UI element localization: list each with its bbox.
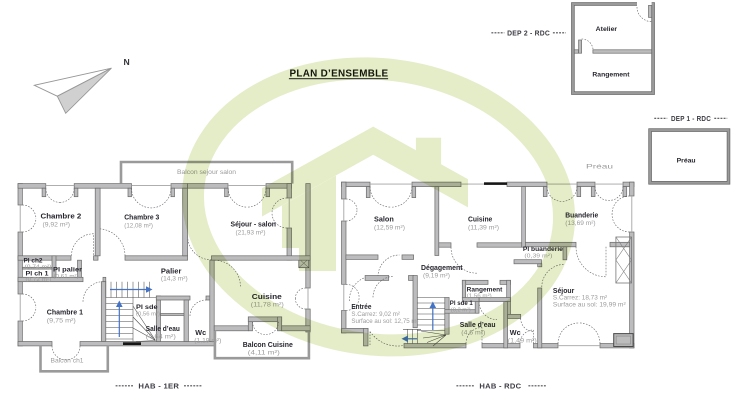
svg-text:(0,61 m²): (0,61 m²) bbox=[54, 274, 79, 280]
svg-text:N: N bbox=[124, 57, 130, 67]
svg-text:(0,72 m²): (0,72 m²) bbox=[26, 277, 52, 283]
svg-text:(1,56 m²): (1,56 m²) bbox=[467, 294, 492, 300]
svg-text:Rangement: Rangement bbox=[467, 286, 503, 293]
svg-text:(4,64 m²): (4,64 m²) bbox=[146, 334, 176, 341]
svg-text:Cuisine: Cuisine bbox=[468, 216, 492, 224]
svg-text:Séjour - salon: Séjour - salon bbox=[231, 221, 277, 229]
svg-text:Pl palier: Pl palier bbox=[53, 266, 83, 273]
svg-text:Chambre 3: Chambre 3 bbox=[124, 213, 159, 221]
svg-text:(9,19 m²): (9,19 m²) bbox=[423, 273, 450, 280]
svg-text:Salle d’eau: Salle d’eau bbox=[146, 325, 180, 333]
svg-text:HAB - 1ER: HAB - 1ER bbox=[138, 384, 179, 391]
svg-text:Pl sde 1: Pl sde 1 bbox=[450, 300, 474, 307]
svg-text:Chambre 2: Chambre 2 bbox=[41, 212, 82, 220]
svg-text:Wc: Wc bbox=[195, 329, 206, 337]
svg-text:Dégagement: Dégagement bbox=[421, 264, 463, 272]
svg-text:Salon: Salon bbox=[374, 216, 394, 224]
svg-text:(0,56 m²): (0,56 m²) bbox=[136, 312, 160, 318]
svg-text:Wc: Wc bbox=[510, 329, 521, 337]
svg-text:(1,19 m²): (1,19 m²) bbox=[194, 337, 221, 344]
svg-text:Rangement: Rangement bbox=[592, 72, 629, 79]
svg-text:(14,3 m²): (14,3 m²) bbox=[161, 275, 188, 282]
svg-text:Balcon ch1: Balcon ch1 bbox=[51, 357, 85, 364]
svg-text:Surface au sol: 19,99 m²: Surface au sol: 19,99 m² bbox=[553, 301, 626, 308]
svg-text:(0,2 m²): (0,2 m²) bbox=[451, 308, 471, 314]
svg-text:HAB - RDC: HAB - RDC bbox=[479, 384, 521, 391]
svg-text:S.Carrez: 9,02 m²: S.Carrez: 9,02 m² bbox=[351, 311, 400, 318]
svg-text:Entrée: Entrée bbox=[351, 303, 371, 311]
svg-text:(12,59 m²): (12,59 m²) bbox=[374, 225, 405, 232]
svg-text:DEP 1 - RDC: DEP 1 - RDC bbox=[671, 116, 711, 123]
svg-text:Pl sde: Pl sde bbox=[136, 304, 158, 311]
svg-text:Préau: Préau bbox=[586, 164, 614, 171]
svg-text:(21,93 m²): (21,93 m²) bbox=[236, 230, 266, 237]
svg-text:(1,49 m²): (1,49 m²) bbox=[508, 337, 537, 344]
svg-text:(9,75 m²): (9,75 m²) bbox=[47, 317, 76, 324]
svg-text:Balcon Cuisine: Balcon Cuisine bbox=[243, 341, 293, 349]
svg-text:(12,08 m²): (12,08 m²) bbox=[124, 222, 153, 229]
svg-text:(9,92 m²): (9,92 m²) bbox=[43, 221, 71, 228]
svg-text:Chambre 1: Chambre 1 bbox=[47, 309, 83, 317]
svg-text:Palier: Palier bbox=[161, 267, 182, 275]
svg-text:(11,39 m²): (11,39 m²) bbox=[468, 225, 499, 232]
svg-text:Surface au sol: 12,75 m²: Surface au sol: 12,75 m² bbox=[351, 318, 418, 325]
svg-text:(4,11 m²): (4,11 m²) bbox=[248, 349, 280, 356]
svg-text:DEP 2 - RDC: DEP 2 - RDC bbox=[507, 31, 550, 38]
svg-text:Préau: Préau bbox=[677, 157, 696, 164]
svg-text:Atelier: Atelier bbox=[596, 26, 618, 33]
